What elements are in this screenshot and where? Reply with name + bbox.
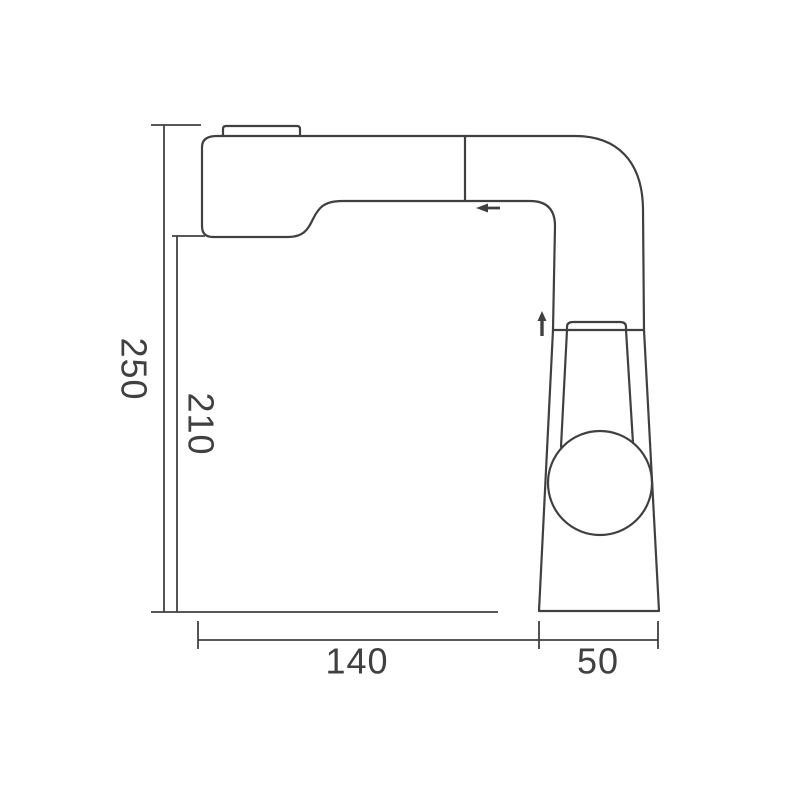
spray-head-left-edge xyxy=(561,330,567,447)
arrow-left-icon xyxy=(476,204,500,213)
spray-head-cap xyxy=(567,322,626,330)
dimension-label-spout-reach: 140 xyxy=(325,641,388,682)
dimension-label-overall-height: 250 xyxy=(114,337,155,400)
arrow-up-icon xyxy=(538,311,547,336)
dimension-label-base-width: 50 xyxy=(577,641,619,682)
spray-head-right-edge xyxy=(626,330,633,443)
direction-arrows-group xyxy=(476,204,547,337)
faucet-outline-group xyxy=(202,126,659,611)
dimension-lines-group xyxy=(151,125,658,649)
handle-knob-circle xyxy=(548,431,652,535)
dimension-label-spout-height: 210 xyxy=(181,392,222,455)
faucet-technical-drawing: 250 210 140 50 xyxy=(0,0,800,800)
spout-top-cap xyxy=(223,126,300,136)
faucet-body-outline xyxy=(202,136,659,611)
drawing-canvas: 250 210 140 50 xyxy=(0,0,800,800)
